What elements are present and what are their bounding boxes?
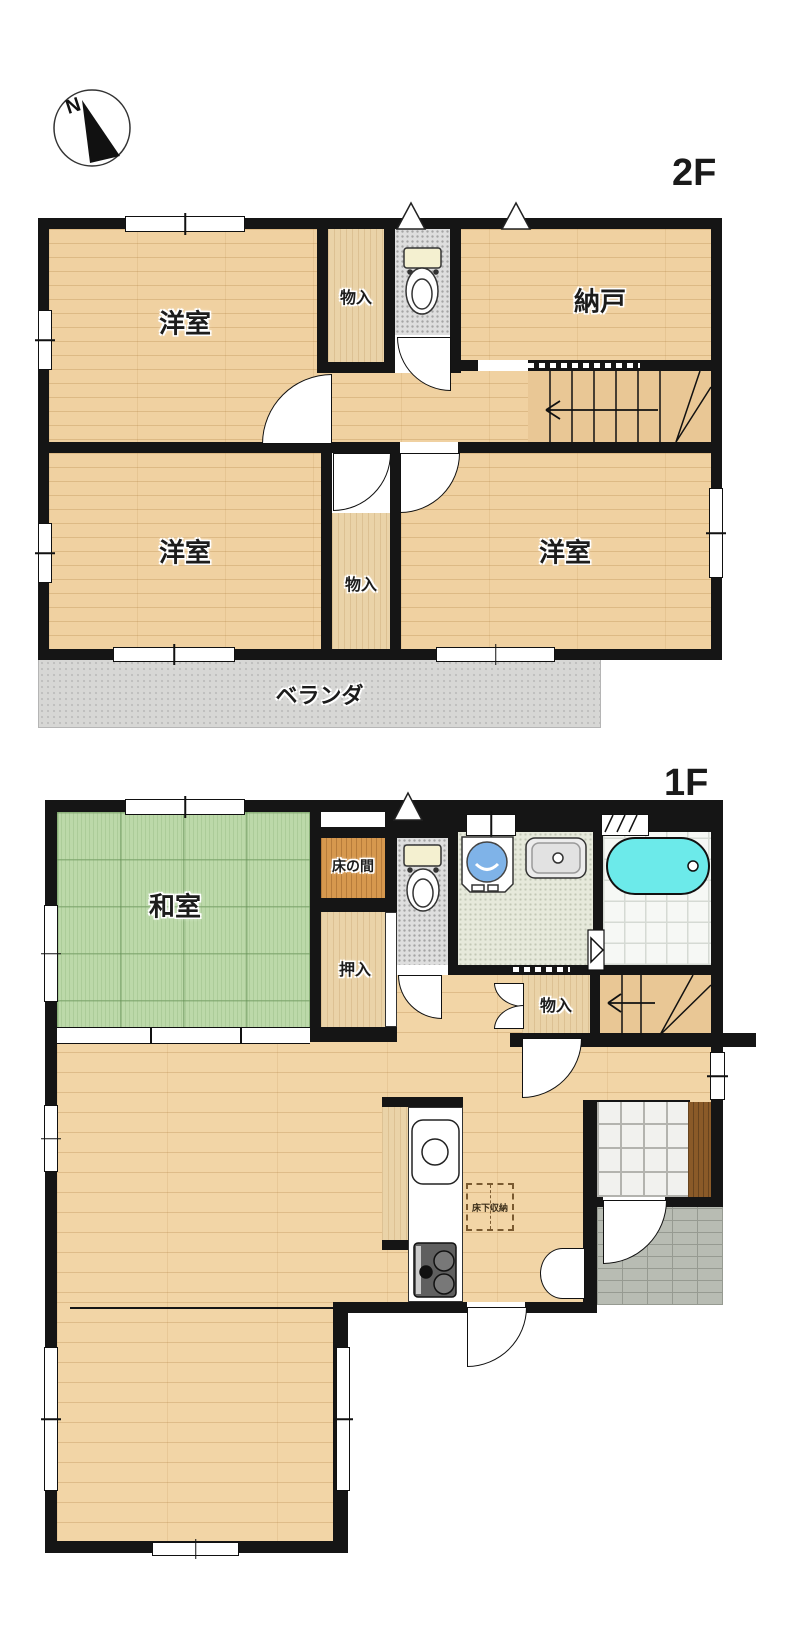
floorplan-1f: 床下収納 [45,800,723,1553]
room-label-sw: 洋室 [159,533,211,570]
stove-icon [414,1243,456,1297]
bath-door-icon [588,930,604,970]
roof-vent-icon [394,793,422,820]
washing-machine-icon [462,837,513,892]
balcony-label: ベランダ [275,678,363,710]
closet-bottom-label: 物入 [345,571,377,595]
fixtures-1f [45,800,723,1553]
bathtub-icon [607,838,709,894]
floorplan-2f: 洋室 物入 納戸 洋室 物入 洋室 [38,218,722,660]
window [436,647,555,662]
closet-top-label: 物入 [340,284,372,308]
monoire-label: 物入 [540,992,572,1016]
toilet-icon [404,248,441,314]
stair-direction-arrow [546,401,658,419]
storage-room-label: 納戸 [574,282,626,319]
kitchen-sink-icon [412,1120,459,1184]
tokonoma-label: 床の間 [332,856,374,876]
compass-icon: N [52,84,132,170]
floor1-title: 1F [664,762,708,805]
oshiire-label: 押入 [339,956,371,980]
room-label-se: 洋室 [539,533,591,570]
floorplan-page: N 2F 1F ベランダ [0,0,791,1626]
hatch-window-lines [605,815,637,832]
washitsu-label: 和室 [149,887,201,924]
window [113,647,235,662]
floor2-title: 2F [672,152,716,195]
stair-direction-arrow [608,994,655,1012]
toilet-icon [404,845,441,911]
roof-vent-icons [397,203,530,229]
window [709,488,723,578]
balcony-area: ベランダ [38,659,601,728]
washbasin-icon [526,838,586,878]
room-label-nw: 洋室 [159,304,211,341]
